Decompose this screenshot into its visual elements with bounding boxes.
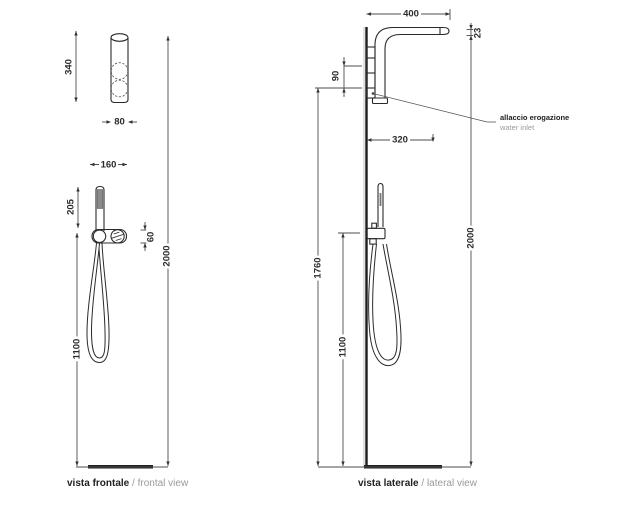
jet-circle-top	[111, 63, 128, 80]
frontal-view-caption: vista frontale / frontal view	[67, 478, 188, 490]
frontal-view-drawing	[87, 34, 153, 469]
arrow	[107, 120, 112, 123]
frontal-dimensions	[74, 31, 169, 467]
dim-mixer-width: 160	[99, 160, 119, 170]
arrow	[75, 462, 78, 467]
dim-hose-drop-lateral: 1100	[338, 335, 348, 360]
frontal-caption-subtitle: / frontal view	[132, 478, 188, 489]
water-inlet-label-it: allaccio erogazione	[500, 113, 569, 123]
arrow	[341, 233, 344, 238]
mixer-bracket-frontal	[92, 230, 127, 244]
mixer-knob-hatch	[111, 231, 125, 241]
arrow	[123, 163, 128, 166]
arrow	[469, 462, 472, 467]
lateral-view-caption: vista laterale / lateral view	[358, 478, 477, 490]
arrow	[316, 88, 319, 93]
lateral-caption-title: vista laterale	[358, 478, 419, 489]
arrow	[342, 88, 345, 93]
mixer-lateral	[367, 223, 385, 244]
panel-top-rim	[111, 34, 128, 42]
dim-arm-reach: 400	[401, 9, 421, 19]
arrow	[166, 36, 169, 41]
water-inlet-leader	[372, 92, 496, 122]
shower-arm	[373, 28, 450, 104]
handshower-grip-side	[380, 193, 382, 206]
arrow	[74, 98, 77, 103]
handshower-grip	[97, 190, 103, 209]
arrow	[90, 163, 95, 166]
dim-inlet-offset: 320	[390, 135, 410, 145]
arrow	[446, 12, 451, 15]
frontal-caption-title: vista frontale	[67, 478, 129, 489]
dim-inlet-height: 1760	[313, 255, 323, 280]
dim-panel-width: 80	[112, 117, 127, 127]
handshower-holder-ring	[93, 230, 105, 242]
arrow	[342, 62, 345, 67]
wall-bracket	[367, 47, 376, 98]
dim-hose-drop-frontal: 1100	[72, 337, 82, 362]
dim-mixer-height: 60	[146, 229, 156, 244]
hose-frontal	[87, 243, 109, 363]
jet-circle-bottom	[111, 80, 128, 97]
arrow	[75, 233, 78, 238]
arrow	[128, 120, 133, 123]
hose-lateral	[369, 244, 401, 366]
technical-drawing-page: 340 80 160 205 60 1100 2000 400 23 90 32…	[0, 0, 642, 506]
drawing-canvas	[0, 0, 642, 506]
arrow	[76, 187, 79, 192]
arrow	[316, 462, 319, 467]
water-inlet-callout: allaccio erogazione water inlet	[500, 113, 569, 133]
lateral-caption-subtitle: / lateral view	[421, 478, 477, 489]
handshower-frontal	[96, 187, 104, 244]
panel-bottom	[111, 100, 128, 103]
water-inlet-label-en: water inlet	[500, 123, 569, 133]
handshower-lateral	[378, 184, 383, 228]
arrow	[74, 31, 77, 36]
arm-end-cap	[373, 98, 388, 104]
arrow	[367, 12, 372, 15]
dim-total-height-lateral: 2000	[466, 225, 476, 250]
dim-total-height-frontal: 2000	[162, 243, 172, 268]
arrow	[76, 224, 79, 229]
dim-handshower-height: 205	[66, 197, 76, 217]
arrow	[166, 462, 169, 467]
arrow	[341, 462, 344, 467]
shower-panel	[111, 34, 128, 103]
dim-bracket-height: 90	[331, 69, 341, 84]
lateral-view-drawing	[364, 27, 449, 469]
dim-panel-height: 340	[64, 57, 74, 77]
dim-arm-thickness: 23	[473, 26, 483, 41]
